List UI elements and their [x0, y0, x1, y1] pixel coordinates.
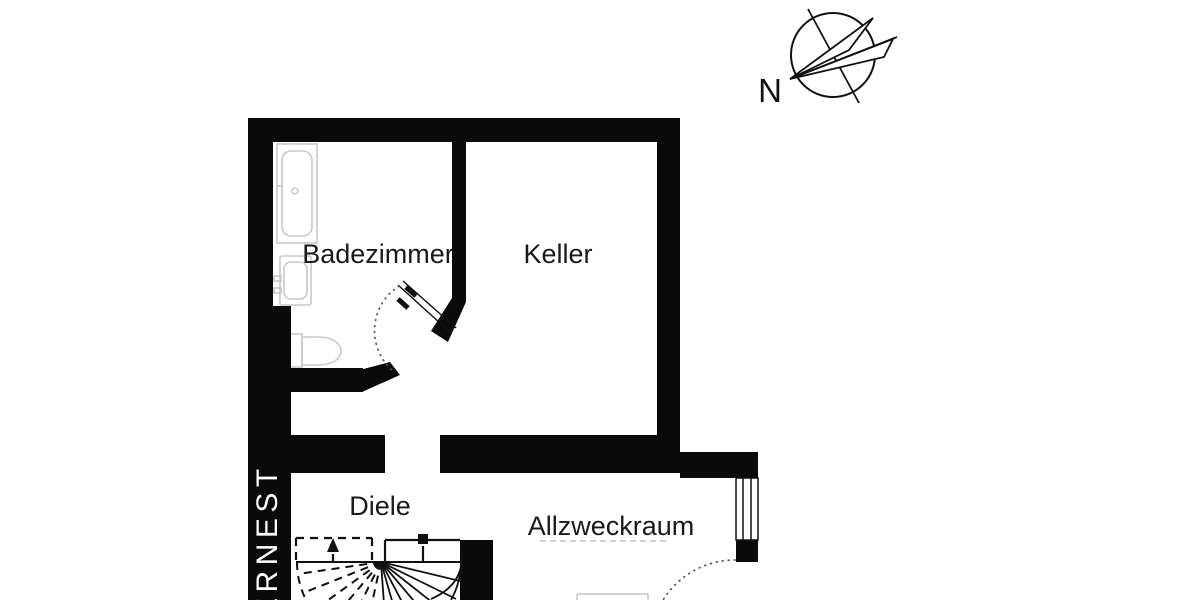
- wall-bathroom-bottom: [248, 368, 363, 392]
- watermark-text: ERNEST: [251, 463, 284, 600]
- up-arrow: [327, 538, 339, 552]
- bathtub: [277, 144, 317, 243]
- room-label-diele: Diele: [349, 491, 411, 521]
- room-label-allzweckraum: Allzweckraum: [528, 511, 695, 541]
- north-label: N: [758, 72, 782, 109]
- stair-newel-post: [418, 534, 428, 544]
- badezimmer-door: [375, 281, 456, 370]
- stair-treads-dashed: [297, 562, 381, 600]
- room-label-keller: Keller: [523, 239, 592, 269]
- door-swing-arc-allzweckraum: [663, 560, 735, 600]
- wall-divider-bad-keller: [452, 142, 466, 302]
- floor-plan-drawing: N Badezimmer Keller Diele Allzweckraum E…: [0, 0, 1200, 600]
- wall-step-right: [680, 452, 758, 478]
- wall-allzweck-right: [736, 540, 758, 562]
- cutoff-object-outline: [577, 594, 648, 600]
- compass-rose: N: [758, 9, 897, 109]
- wall-right-keller: [657, 118, 680, 457]
- door-swing-arc-badezimmer: [375, 286, 399, 370]
- stair-treads-solid: [381, 545, 462, 600]
- room-label-badezimmer: Badezimmer: [302, 239, 454, 269]
- wall-top: [250, 118, 680, 142]
- window-symbol: [736, 478, 758, 540]
- floor-plan-page: N Badezimmer Keller Diele Allzweckraum E…: [0, 0, 1200, 600]
- stair-handrail-curve: [431, 545, 462, 599]
- toilet: [290, 334, 341, 367]
- wall-stair-block: [460, 540, 493, 600]
- wall-left-upper: [248, 118, 273, 308]
- wall-band-right: [440, 435, 680, 473]
- spiral-staircase: [296, 534, 462, 600]
